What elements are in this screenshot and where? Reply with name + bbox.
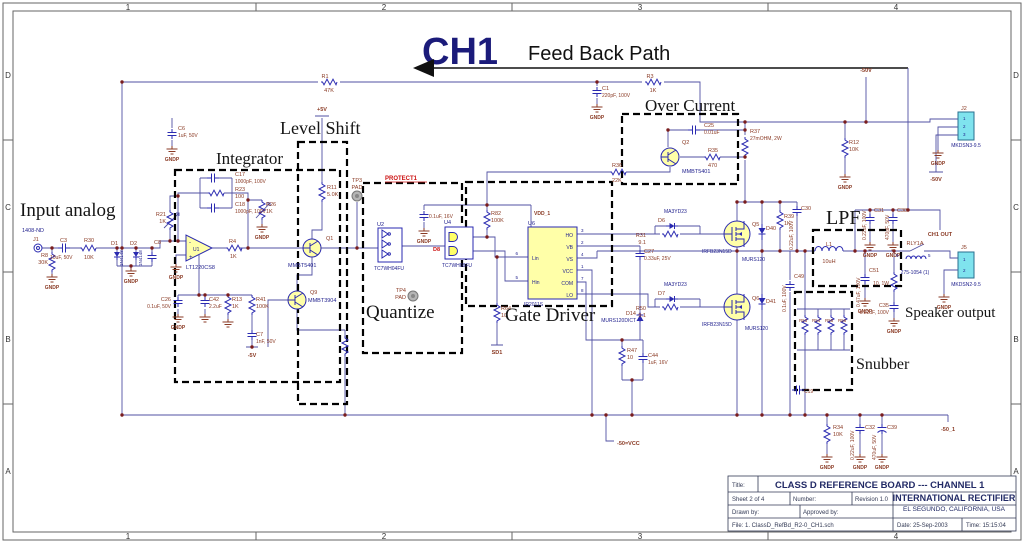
junction-dot xyxy=(197,293,200,296)
ground-label: GNDP xyxy=(171,325,186,331)
section-label-level-shift: Level Shift xyxy=(280,118,360,138)
component-label: 10 xyxy=(627,355,633,361)
component-label: COM xyxy=(561,281,573,287)
component-label: C6 xyxy=(178,126,185,132)
component-label: PAD xyxy=(395,295,406,301)
junction-dot xyxy=(778,249,781,252)
component-label: C42 xyxy=(209,297,219,303)
junction-dot xyxy=(795,249,798,252)
component-label: 2.2uF xyxy=(209,304,222,310)
component-label: 0.22uF, 100V xyxy=(860,310,890,316)
component-label: R56 xyxy=(838,318,847,323)
component-label: 1K xyxy=(159,219,166,225)
component-label: C3 xyxy=(60,238,67,244)
feedback-path-label: Feed Back Path xyxy=(528,43,670,65)
component-label: 10uH xyxy=(822,259,835,265)
junction-dot xyxy=(853,249,856,252)
component-label: Q2 xyxy=(682,140,689,146)
zone-col-label: 3 xyxy=(638,3,643,12)
component-label: MKDSN3-9.5 xyxy=(951,143,981,149)
tb-file: File: 1. ClassD_RefBd_R2-0_CH1.sch xyxy=(732,523,834,529)
zone-col-label: 4 xyxy=(894,3,899,12)
component-label: R23 xyxy=(235,187,245,193)
junction-dot xyxy=(778,200,781,203)
component-label: D2 xyxy=(130,241,137,247)
component-label: C35 xyxy=(879,303,889,309)
component-label: D40 xyxy=(766,226,776,232)
component-label: C1 xyxy=(602,86,609,92)
junction-dot xyxy=(120,413,123,416)
component-label: R47 xyxy=(627,348,637,354)
zone-row-label: A xyxy=(5,467,11,476)
component-label: Hin xyxy=(532,280,540,286)
component-label: 10uF, 50V xyxy=(50,255,73,261)
component-label: -50V xyxy=(930,177,942,183)
zone-col-label: 2 xyxy=(382,3,387,12)
component-label: C19 xyxy=(804,389,813,395)
section-label-integrator: Integrator xyxy=(216,149,283,168)
ground-label: GNDP xyxy=(875,465,890,471)
component-label: Q6 xyxy=(752,296,759,302)
component-label: IRFB23N15D xyxy=(702,322,732,328)
section-label-lpf: LPF xyxy=(826,207,860,229)
component-label: VDD_1 xyxy=(534,211,550,217)
transistor-q2 xyxy=(661,148,679,166)
component-label: 1000pF, 100V xyxy=(235,209,267,215)
component-label: MA3YD23 xyxy=(664,209,687,215)
component-label: C25 xyxy=(704,123,714,129)
zone-row-label: B xyxy=(1013,335,1018,344)
component-label: -50=VCC xyxy=(617,441,640,447)
component-label: 1K xyxy=(650,88,657,94)
component-label: 0.22uF, 100V xyxy=(850,430,856,460)
component-label: R36 xyxy=(612,163,622,169)
junction-dot xyxy=(666,128,669,131)
junction-dot xyxy=(203,293,206,296)
component-label: C51 xyxy=(869,268,879,274)
component-label: 1N4148 xyxy=(119,250,124,266)
component-label: U4 xyxy=(444,220,451,226)
junction-dot xyxy=(735,413,738,416)
tb-revision: Revision 1.0 xyxy=(855,497,889,503)
tb-title: CLASS D REFERENCE BOARD --- CHANNEL 1 xyxy=(775,480,985,491)
junction-dot xyxy=(825,413,828,416)
tb-date: Date: 25-Sep-2003 xyxy=(897,523,948,529)
component-label: 9.1 xyxy=(638,313,646,319)
zone-row-label: C xyxy=(1013,203,1019,212)
transistor-q1 xyxy=(303,239,321,257)
component-label: PAD xyxy=(352,185,363,191)
component-label: J2 xyxy=(961,106,967,112)
component-label: R39 xyxy=(784,214,794,220)
component-label: R21 xyxy=(156,212,166,218)
component-label: R12 xyxy=(849,140,859,146)
component-label: R82 xyxy=(491,211,501,217)
zone-col-label: 1 xyxy=(126,3,131,12)
component-label: Q1 xyxy=(326,236,333,242)
component-label: MMBT5401 xyxy=(682,169,710,175)
component-label: R26 xyxy=(266,202,276,208)
tb-approved: Approved by: xyxy=(803,510,839,516)
component-label: 10K xyxy=(833,432,843,438)
zone-row-label: D xyxy=(1013,71,1019,80)
testpoint-tp3 xyxy=(352,191,362,201)
component-label: MA3YD23 xyxy=(664,282,687,288)
component-label: C39 xyxy=(887,425,897,431)
section-label-snubber: Snubber xyxy=(856,356,910,373)
component-label: LT1220CS8 xyxy=(186,265,215,271)
ground-label: GNDP xyxy=(255,235,270,241)
component-label: C26 xyxy=(161,297,171,303)
tb-company: INTERNATIONAL RECTIFIER xyxy=(893,493,1016,503)
component-label: 1K xyxy=(232,304,239,310)
tb-sheet: Sheet 2 of 4 xyxy=(732,497,765,503)
junction-dot xyxy=(843,120,846,123)
junction-dot xyxy=(246,198,249,201)
junction-dot xyxy=(595,80,598,83)
component-label: 1K xyxy=(266,209,273,215)
component-label: TC7WH08FU xyxy=(442,263,472,269)
component-label: R54 xyxy=(812,318,821,323)
component-label: 10K xyxy=(84,255,94,261)
ground-label: GNDP xyxy=(417,239,432,245)
component-label: J5 xyxy=(961,245,967,251)
component-label: 1N4148 xyxy=(138,250,143,266)
component-label: R13 xyxy=(232,297,242,303)
junction-dot xyxy=(120,80,123,83)
component-label: Q9 xyxy=(310,290,317,296)
section-label-input-analog: Input analog xyxy=(20,200,116,221)
mosfet-q6 xyxy=(724,294,750,320)
component-label: C17 xyxy=(235,172,245,178)
component-label: 0.22uF, 100V xyxy=(862,210,868,240)
junction-dot xyxy=(788,413,791,416)
component-label: U2 xyxy=(377,222,384,228)
junction-dot xyxy=(858,413,861,416)
component-label: R34 xyxy=(833,425,843,431)
component-label: Lin xyxy=(532,256,539,262)
component-label: MURS120DICT xyxy=(601,318,636,324)
junction-dot xyxy=(485,235,488,238)
ground-label: GNDP xyxy=(838,185,853,191)
zone-col-label: 4 xyxy=(894,532,899,541)
component-label: R3 xyxy=(646,74,653,80)
component-label: 470uF, 50V xyxy=(872,434,878,460)
tb-time: Time: 15:15:04 xyxy=(966,523,1006,529)
component-label: C18 xyxy=(235,202,245,208)
zone-col-label: 2 xyxy=(382,532,387,541)
component-label: 1000pF, 100V xyxy=(235,179,267,185)
testpoint-tp4 xyxy=(408,291,418,301)
component-label: 1K xyxy=(230,254,237,260)
junction-dot xyxy=(246,246,249,249)
component-label: 9.1 xyxy=(638,240,646,246)
tb-drawn: Drawn by: xyxy=(732,510,759,516)
component-label: RLY1A xyxy=(906,241,923,247)
zone-row-label: A xyxy=(1013,467,1019,476)
component-label: TC7WH04FU xyxy=(374,266,404,272)
component-label: C8 xyxy=(154,240,161,246)
junction-dot xyxy=(604,413,607,416)
component-label: Q5 xyxy=(752,222,759,228)
component-label: MMBT5401 xyxy=(288,263,316,269)
component-label: MMBT3904 xyxy=(308,298,336,304)
component-label: 22K xyxy=(612,178,622,184)
transistor-q9 xyxy=(288,291,306,309)
junction-dot xyxy=(760,200,763,203)
ground-label: GNDP xyxy=(165,157,180,163)
component-label: 1uF, 16V xyxy=(648,360,668,366)
component-label: CH1 OUT xyxy=(928,232,953,238)
component-label: C31 xyxy=(874,208,884,214)
component-label: U1 xyxy=(193,247,200,253)
component-label: R31 xyxy=(636,233,646,239)
component-label: LO xyxy=(566,293,573,299)
component-label: MURS120 xyxy=(745,326,768,332)
ground-label: GNDP xyxy=(45,285,60,291)
component-label: D6 xyxy=(658,218,665,224)
component-label: 470 xyxy=(708,163,717,169)
junction-dot xyxy=(735,200,738,203)
component-label: TP4 xyxy=(396,288,406,294)
component-label: TP3 xyxy=(352,178,362,184)
component-label: D14 xyxy=(626,311,636,317)
component-label: - xyxy=(189,240,191,246)
junction-dot xyxy=(150,246,153,249)
junction-dot xyxy=(176,239,179,242)
ground-label: GNDP xyxy=(931,161,946,167)
ground-label: GNDP xyxy=(169,275,184,281)
component-label: VCC xyxy=(562,269,573,275)
schematic-page: 11223344DDCCBBAA CH1 Feed Back Path xyxy=(0,0,1024,543)
junction-dot xyxy=(880,413,883,416)
component-label: VB xyxy=(566,245,573,251)
component-label: D8 xyxy=(433,247,440,253)
junction-dot xyxy=(590,413,593,416)
junction-dot xyxy=(495,255,498,258)
junction-dot xyxy=(168,239,171,242)
component-label: L1 xyxy=(826,242,832,248)
component-label: C30 xyxy=(801,206,811,212)
component-label: J1 xyxy=(33,237,39,243)
component-label: 1uF, 50V xyxy=(178,133,198,139)
component-label: 47K xyxy=(324,88,334,94)
component-label: R8 xyxy=(41,253,48,259)
component-label: HO xyxy=(566,233,574,239)
component-label: R1 xyxy=(321,74,328,80)
tb-address: EL SEGUNDO, CALIFORNIA, USA xyxy=(903,506,1006,513)
component-label: 5.0K xyxy=(327,192,339,198)
mosfet-q5 xyxy=(724,221,750,247)
ground-label: GNDP xyxy=(863,253,878,259)
junction-dot xyxy=(760,413,763,416)
component-label: R55 xyxy=(825,318,834,323)
component-label: 10, 1W xyxy=(873,281,889,287)
component-label: 30K xyxy=(38,260,48,266)
junction-dot xyxy=(50,246,53,249)
component-label: PROTECT1 xyxy=(385,176,418,182)
component-label: 275-1054 (1) xyxy=(901,270,930,276)
component-label: +5V xyxy=(317,107,327,113)
tb-number: Number: xyxy=(793,497,816,503)
junction-dot xyxy=(803,413,806,416)
component-label: -50V xyxy=(860,68,872,74)
zone-col-label: 3 xyxy=(638,532,643,541)
junction-dot xyxy=(743,155,746,158)
component-label: R37 xyxy=(750,129,760,135)
component-label: MURS120 xyxy=(742,257,765,263)
junction-dot xyxy=(355,246,358,249)
ground-label: GNDP xyxy=(887,329,902,335)
component-label: 220pF, 100V xyxy=(602,93,631,99)
component-label: 1nF, 50V xyxy=(256,339,276,345)
section-label-quantize: Quantize xyxy=(366,302,435,323)
schematic-canvas: 11223344DDCCBBAA CH1 Feed Back Path xyxy=(0,0,1024,543)
component-label: 100K xyxy=(491,218,504,224)
junction-dot xyxy=(891,208,894,211)
component-label: C44 xyxy=(648,353,658,359)
component-label: D1 xyxy=(111,241,118,247)
ground-label: GNDP xyxy=(124,279,139,285)
component-label: 0.47uF, 100V xyxy=(856,277,862,307)
component-label: C32 xyxy=(865,425,875,431)
component-label: VS xyxy=(566,257,573,263)
component-label: + xyxy=(189,255,193,261)
component-label: 0.22uF, 100V xyxy=(789,220,795,250)
component-label: IRFB23N15D xyxy=(702,249,732,255)
section-label-speaker-output: Speaker output xyxy=(905,305,996,321)
zone-row-label: D xyxy=(5,71,11,80)
ground-label: GNDP xyxy=(853,465,868,471)
junction-dot xyxy=(760,249,763,252)
connector-j2 xyxy=(958,112,974,140)
junction-dot xyxy=(743,200,746,203)
component-label: R53 xyxy=(799,318,808,323)
component-label: -5V xyxy=(248,353,257,359)
component-label: 27mOHM, 2W xyxy=(750,136,782,142)
junction-dot xyxy=(864,120,867,123)
component-label: C7 xyxy=(256,332,263,338)
component-label: 0.1uF, 100V xyxy=(782,285,788,312)
ground-label: GNDP xyxy=(820,465,835,471)
component-label: 10K xyxy=(849,147,859,153)
component-label: R11 xyxy=(327,185,337,191)
component-label: 0.33uF, 25V xyxy=(644,256,671,262)
junction-dot xyxy=(129,264,132,267)
junction-dot xyxy=(485,203,488,206)
component-label: -50_1 xyxy=(941,427,955,433)
component-label: 0.01uF xyxy=(704,130,720,136)
component-label: 470pF, 50V xyxy=(885,214,891,240)
component-label: C38 xyxy=(897,208,907,214)
junction-dot xyxy=(743,120,746,123)
component-label: R4 xyxy=(229,239,236,245)
component-label: R35 xyxy=(708,148,718,154)
component-label: 100K xyxy=(256,304,269,310)
junction-dot xyxy=(868,208,871,211)
component-label: 0.1uF, 50V xyxy=(147,304,172,310)
component-label: D7 xyxy=(658,291,665,297)
connector-j5 xyxy=(958,252,974,278)
component-label: R50 xyxy=(636,306,646,312)
component-label: D41 xyxy=(766,299,776,305)
zone-row-label: B xyxy=(5,335,10,344)
zone-row-label: C xyxy=(5,203,11,212)
junction-dot xyxy=(630,413,633,416)
component-label: C49 xyxy=(794,274,804,280)
component-label: 1408-ND xyxy=(22,228,44,234)
component-label: MKDSN2-9.5 xyxy=(951,282,981,288)
ground-label: GNDP xyxy=(886,253,901,259)
zone-col-label: 1 xyxy=(126,532,131,541)
component-label: C27 xyxy=(644,249,654,255)
junction-dot xyxy=(743,128,746,131)
component-label: U6 xyxy=(528,221,535,227)
section-label-over-current: Over Current xyxy=(645,96,735,115)
section-label-gate-driver: Gate Driver xyxy=(505,305,596,326)
junction-dot xyxy=(735,249,738,252)
ground-label: GNDP xyxy=(590,115,605,121)
junction-dot xyxy=(176,194,179,197)
junction-dot xyxy=(803,249,806,252)
component-label: R41 xyxy=(256,297,266,303)
title-block: Title: CLASS D REFERENCE BOARD --- CHANN… xyxy=(728,476,1016,531)
junction-dot xyxy=(630,378,633,381)
junction-dot xyxy=(226,293,229,296)
component-label: 100 xyxy=(235,194,244,200)
junction-dot xyxy=(620,338,623,341)
component-label: SD1 xyxy=(492,350,503,356)
tb-title-label: Title: xyxy=(732,483,745,489)
junction-dot xyxy=(343,413,346,416)
junction-dot xyxy=(120,246,123,249)
component-label: R30 xyxy=(84,238,94,244)
junction-dot xyxy=(250,345,253,348)
